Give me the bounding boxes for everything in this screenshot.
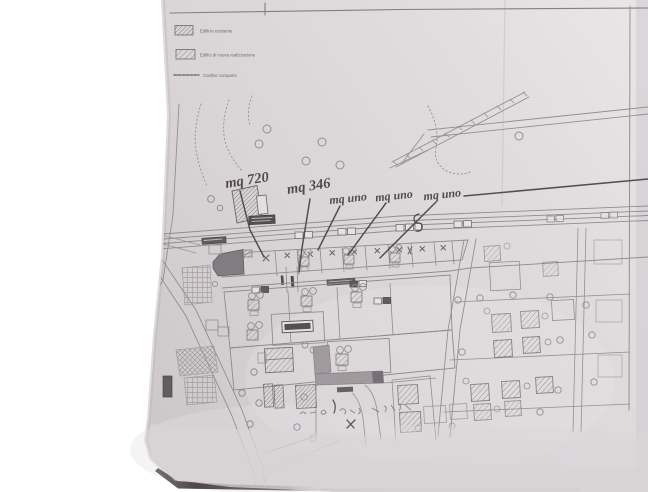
svg-text:Confine comparto: Confine comparto — [203, 73, 238, 78]
svg-text:Edificio esistente: Edificio esistente — [200, 29, 233, 34]
svg-text:Edifici di nuova realizzazione: Edifici di nuova realizzazione — [200, 53, 256, 58]
